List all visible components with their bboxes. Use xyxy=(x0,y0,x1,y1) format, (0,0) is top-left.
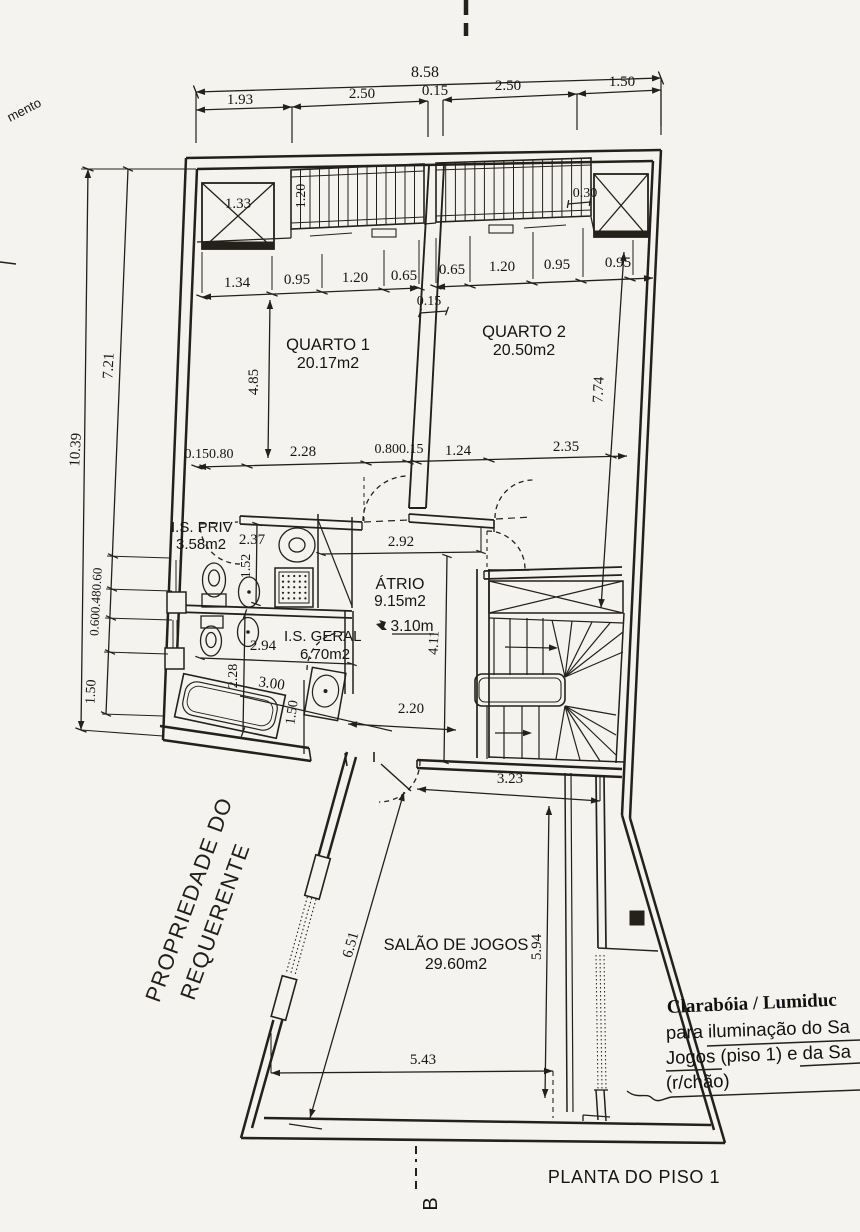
svg-text:PLANTA DO PISO 1: PLANTA DO PISO 1 xyxy=(548,1167,720,1187)
svg-text:4.85: 4.85 xyxy=(246,369,262,395)
svg-text:1.20: 1.20 xyxy=(294,184,309,209)
svg-text:2.37: 2.37 xyxy=(239,532,266,548)
svg-text:0.30: 0.30 xyxy=(573,186,598,201)
svg-text:0.95: 0.95 xyxy=(544,257,570,273)
svg-text:1.33: 1.33 xyxy=(225,196,251,212)
svg-text:SALÃO DE JOGOS: SALÃO DE JOGOS xyxy=(384,934,529,954)
svg-text:9.15m2: 9.15m2 xyxy=(374,593,426,610)
svg-text:29.60m2: 29.60m2 xyxy=(425,956,487,973)
svg-text:6.70m2: 6.70m2 xyxy=(300,646,350,663)
svg-text:7.21: 7.21 xyxy=(100,352,117,379)
svg-text:5.43: 5.43 xyxy=(410,1052,436,1068)
svg-text:3.23: 3.23 xyxy=(497,771,523,787)
svg-text:5.94: 5.94 xyxy=(529,933,545,960)
svg-text:2.50: 2.50 xyxy=(495,78,521,94)
svg-text:2.92: 2.92 xyxy=(388,534,414,550)
svg-text:7.74: 7.74 xyxy=(590,376,607,404)
svg-text:B: B xyxy=(420,1197,442,1210)
svg-text:2.94: 2.94 xyxy=(250,638,277,654)
svg-text:20.17m2: 20.17m2 xyxy=(297,355,359,372)
svg-text:8.58: 8.58 xyxy=(411,64,439,81)
svg-text:1.20: 1.20 xyxy=(489,259,515,275)
svg-text:2.28: 2.28 xyxy=(290,444,316,460)
svg-text:0.65: 0.65 xyxy=(439,262,465,278)
svg-text:QUARTO 2: QUARTO 2 xyxy=(482,323,566,341)
svg-text:0.15: 0.15 xyxy=(422,83,448,99)
svg-text:1.24: 1.24 xyxy=(445,443,472,459)
svg-text:3.58m2: 3.58m2 xyxy=(176,536,226,553)
svg-text:(r/chão): (r/chão) xyxy=(666,1070,730,1093)
svg-text:1.93: 1.93 xyxy=(227,92,253,108)
svg-text:10.39: 10.39 xyxy=(67,433,85,468)
svg-text:0.150.80: 0.150.80 xyxy=(185,447,234,462)
svg-text:0.800.15: 0.800.15 xyxy=(375,442,424,457)
svg-text:2.20: 2.20 xyxy=(398,701,424,717)
svg-text:QUARTO 1: QUARTO 1 xyxy=(286,336,370,354)
svg-text:0.95: 0.95 xyxy=(605,255,631,271)
svg-text:2.50: 2.50 xyxy=(349,86,375,102)
svg-text:1.52: 1.52 xyxy=(239,554,254,579)
svg-text:1.20: 1.20 xyxy=(342,270,368,286)
svg-text:1.50: 1.50 xyxy=(83,679,99,704)
svg-text:ÁTRIO: ÁTRIO xyxy=(376,574,425,593)
svg-text:0.65: 0.65 xyxy=(391,268,417,284)
svg-text:4.11: 4.11 xyxy=(426,630,442,655)
svg-text:1.50: 1.50 xyxy=(609,74,635,90)
svg-text:0.95: 0.95 xyxy=(284,272,310,288)
svg-text:20.50m2: 20.50m2 xyxy=(493,342,555,359)
svg-text:2.35: 2.35 xyxy=(553,439,579,455)
svg-text:I.S. GERAL: I.S. GERAL xyxy=(284,628,362,645)
svg-text:1.34: 1.34 xyxy=(224,275,251,291)
svg-text:I.S. PRIV: I.S. PRIV xyxy=(171,519,233,536)
